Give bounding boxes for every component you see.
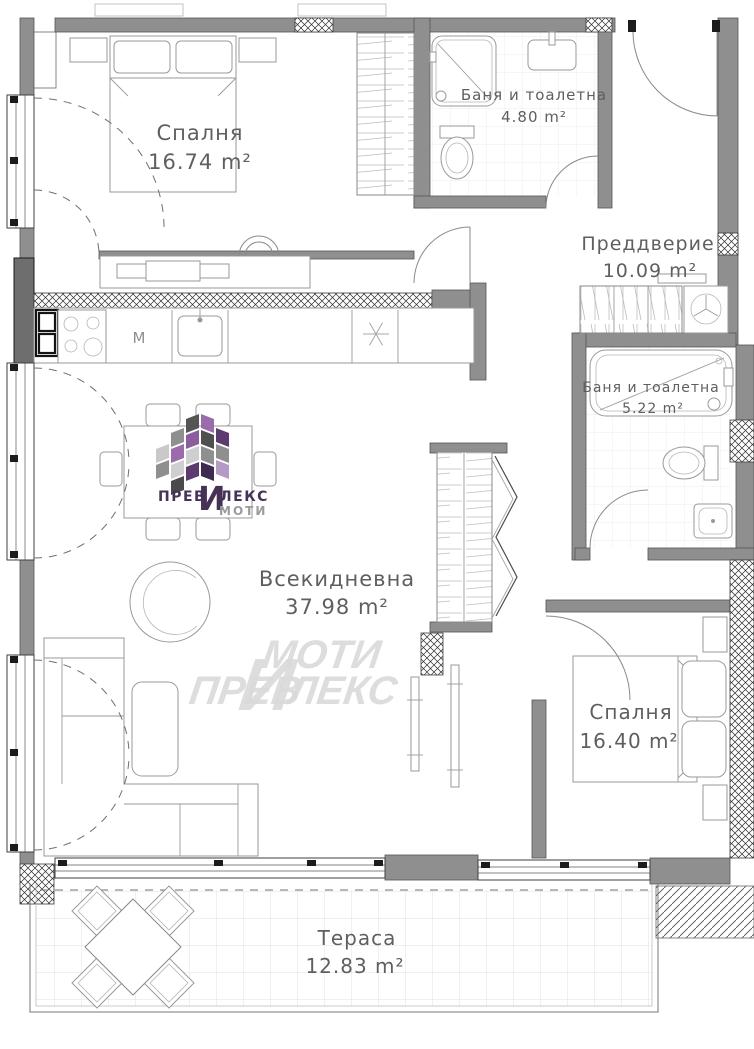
bedroom2-west-wall <box>532 700 546 858</box>
bottom-wall-mid <box>385 855 478 880</box>
bottom-wall-right <box>650 858 730 884</box>
room-area-living: 37.98 m² <box>285 595 389 619</box>
floor-plan-page: М <box>0 0 754 1049</box>
wardrobe-icon <box>580 286 682 333</box>
room-label-bedroom-2: Спалня <box>589 700 672 724</box>
bath2-south-stub <box>575 548 590 560</box>
room-area-bedroom-2: 16.40 m² <box>579 729 678 753</box>
kitchen-duct-end <box>432 290 472 310</box>
armchair-icon <box>130 562 210 642</box>
shaft-hatch <box>718 233 738 255</box>
room-label-vestibule: Преддверие <box>581 233 714 255</box>
nightstand <box>70 38 107 62</box>
bedroom-1-door-swing <box>34 190 99 255</box>
wardrobe-icon <box>437 452 492 622</box>
bath2-south-wall <box>648 548 754 560</box>
room-area-bedroom-1: 16.74 m² <box>148 150 252 174</box>
nightstand <box>703 785 727 820</box>
room-label-bathroom-1: Баня и тоалетна <box>461 86 607 104</box>
party-wall-hatch <box>730 560 754 858</box>
radiator-icon <box>411 677 419 771</box>
bath1-south-wall <box>414 196 546 208</box>
logo-suffix: ЛЕКС <box>220 489 269 505</box>
island-board <box>146 261 200 281</box>
kitchen-island <box>100 236 310 288</box>
room-label-living: Всекидневна <box>259 567 415 591</box>
room-area-terrace: 12.83 m² <box>305 954 404 978</box>
coffee-table-icon <box>132 682 178 776</box>
window-bottom-bedroom2 <box>478 860 650 880</box>
pillow-icon <box>114 41 170 73</box>
chair-icon <box>146 518 180 540</box>
toilet-tank <box>704 446 718 480</box>
room-label-terrace: Тераса <box>317 926 397 950</box>
kitchen-west-block <box>14 258 34 363</box>
room-area-bathroom-1: 4.80 m² <box>501 108 567 126</box>
pillow-icon <box>682 721 726 777</box>
left-wall-a <box>20 18 34 95</box>
window-left-1 <box>7 95 34 228</box>
chair-icon <box>146 404 180 426</box>
bath2-west-wall <box>572 333 586 560</box>
neighbor-terrace-hatch <box>656 886 754 938</box>
wardrobe-icon <box>357 33 414 195</box>
window-swing <box>34 368 129 463</box>
left-wall-b <box>20 228 34 258</box>
radiators <box>407 665 463 787</box>
shaft-hatch <box>295 18 333 32</box>
chair-icon <box>196 518 230 540</box>
watermark-bottom: ЛЕКС <box>284 668 401 713</box>
pillow-icon <box>682 661 726 717</box>
chair-icon <box>254 452 276 486</box>
chair-icon <box>100 452 122 486</box>
kitchen-duct-hatch <box>34 293 432 309</box>
shaft-hatch <box>730 420 754 462</box>
nightstand <box>239 38 276 62</box>
window-bottom-living <box>55 858 385 878</box>
faucet-icon <box>708 398 720 410</box>
left-wall-c <box>20 560 34 655</box>
shaft-hatch <box>586 18 612 32</box>
upper-ledge <box>95 4 183 16</box>
shower-control <box>430 52 436 62</box>
kitchen-appliance-label: М <box>133 329 146 347</box>
room-area-bathroom-2: 5.22 m² <box>622 401 684 417</box>
room-label-bedroom-1: Спалня <box>156 121 243 145</box>
watermark-text: МОТИ ПРЕВ ЛЕКС И <box>185 632 406 726</box>
watermark-big-letter: И <box>235 643 301 726</box>
stove-icon <box>58 310 106 363</box>
window-left-2 <box>7 363 34 560</box>
corridor-cap-bottom <box>430 622 492 632</box>
vestibule-bath2-wall <box>575 333 736 347</box>
bath1-east-wall <box>598 32 612 208</box>
floor-plan: М <box>0 0 754 1049</box>
logo-line2: МОТИ <box>219 504 267 518</box>
kitchen-counter: М <box>34 308 474 363</box>
entrance-door-arc <box>633 31 717 116</box>
bedroom2-north-wall <box>546 600 730 612</box>
bath1-west-wall <box>414 18 430 208</box>
bath-fixture <box>724 368 733 386</box>
shower-drain <box>436 91 446 101</box>
room-label-bathroom-2: Баня и тоалетна <box>582 380 720 396</box>
hall-door-arc <box>414 227 470 283</box>
nightstand <box>703 617 727 652</box>
corridor-wardrobe <box>437 452 517 622</box>
faucet-icon <box>549 32 555 45</box>
terrace-table-set <box>72 886 194 1008</box>
window-left-3 <box>7 655 34 852</box>
top-wall <box>55 18 615 32</box>
radiator-icon <box>451 665 459 787</box>
room-area-vestibule: 10.09 m² <box>603 260 698 282</box>
vestibule-fixtures <box>580 274 728 333</box>
toilet-tank <box>440 126 474 138</box>
shaft-hatch <box>20 864 54 904</box>
upper-ledge <box>298 4 386 16</box>
pillow-icon <box>176 41 232 73</box>
shaft-hatch <box>421 633 443 675</box>
